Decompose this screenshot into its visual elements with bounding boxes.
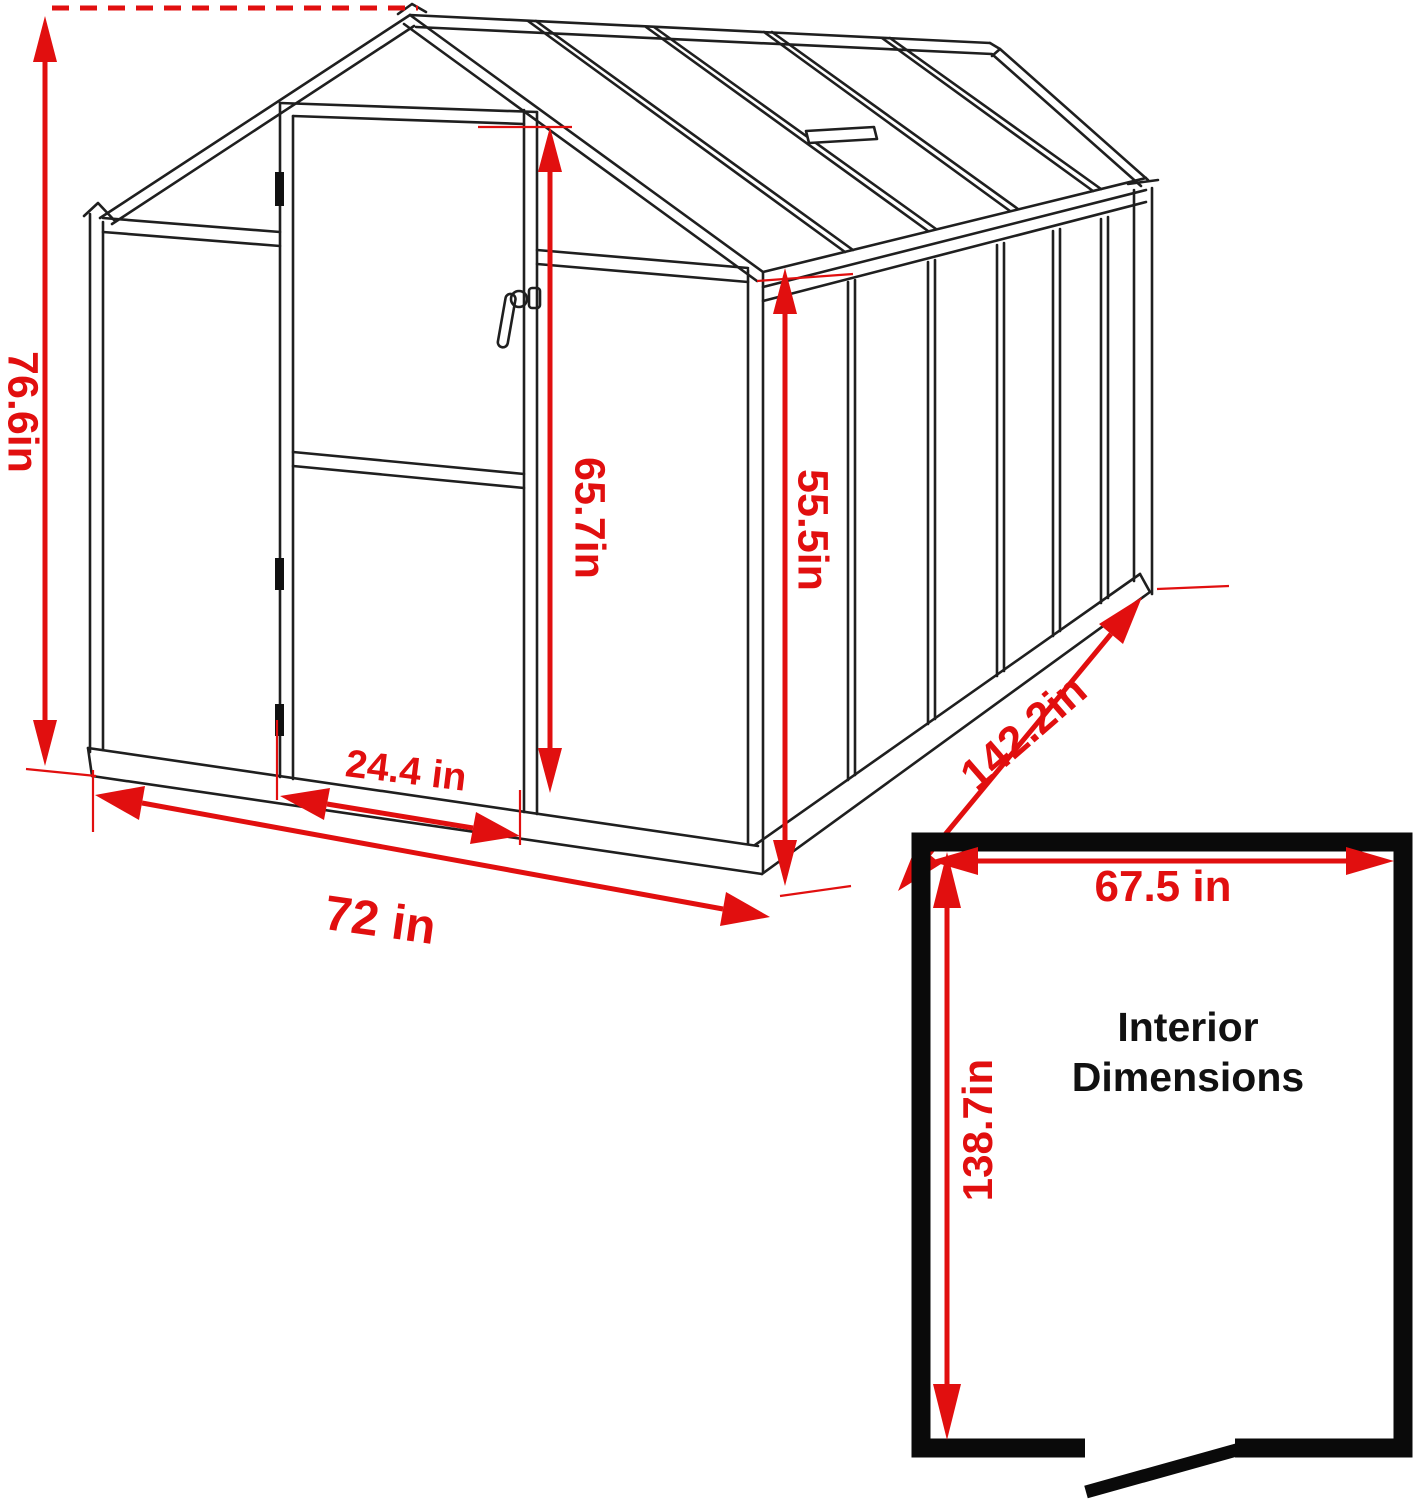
interior-title-line1: Interior [1072, 1002, 1304, 1052]
greenhouse-dimension-diagram: 76.6in 65.7in 55.5in 24.4 in 72 in 142.2… [0, 0, 1414, 1500]
dimension-annotations [26, 8, 1229, 926]
diagram-line-art [0, 0, 1414, 1500]
door-handle [497, 288, 540, 348]
roof-vent [806, 127, 877, 143]
door [275, 103, 540, 814]
door-hinge-middle [275, 558, 284, 590]
plan-door-swing [1086, 1449, 1240, 1492]
door-hinge-top [275, 172, 284, 206]
interior-dimensions-title: Interior Dimensions [1072, 1002, 1304, 1102]
dim-label-wall-height: 55.5in [791, 469, 834, 591]
dim-label-door-height: 65.7in [568, 457, 611, 579]
interior-title-line2: Dimensions [1072, 1052, 1304, 1102]
eave-beams [103, 218, 748, 282]
dim-label-overall-height: 76.6in [1, 351, 44, 473]
dim-label-interior-length: 138.7in [957, 1059, 999, 1201]
roof [410, 15, 1148, 301]
dim-label-interior-width: 67.5 in [1095, 865, 1232, 909]
